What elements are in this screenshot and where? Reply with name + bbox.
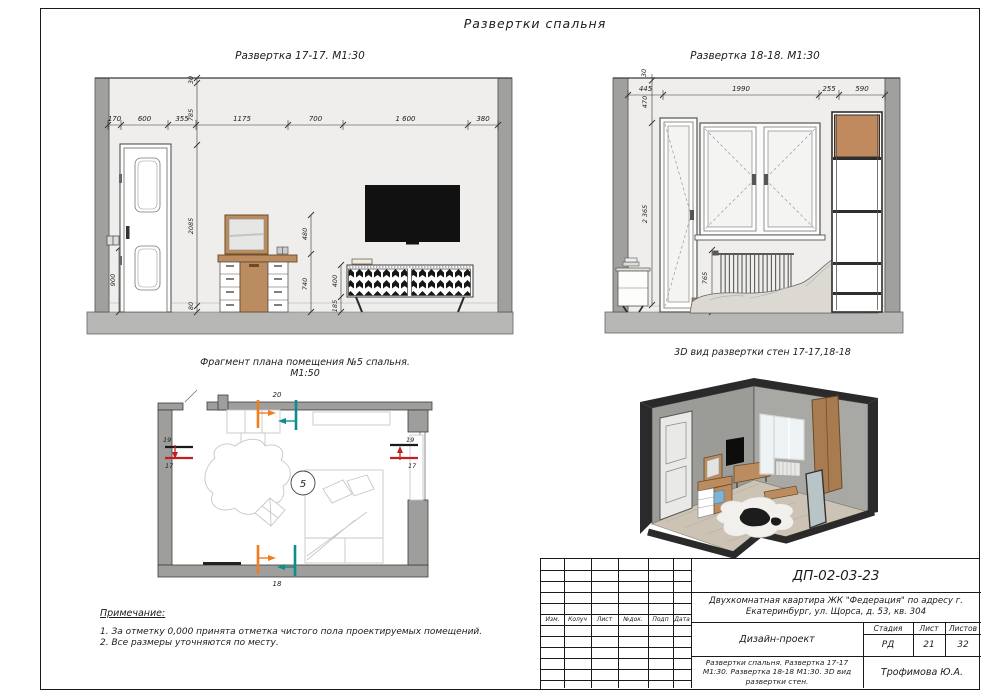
notes-heading: Примечание: [100, 608, 520, 620]
wardrobe [832, 112, 882, 312]
balcony-door [660, 118, 697, 312]
view3d-leaning-mirror [806, 470, 826, 528]
dim-1175: 1175 [233, 115, 251, 123]
tb-project-line2: Екатеринбург, ул. Щорса, д. 53, кв. 304 [746, 607, 926, 618]
tb-line [541, 625, 691, 626]
dresser-center-cabinet [240, 262, 268, 312]
dim-30: 30 [640, 69, 648, 77]
tb-label-izm: Изм. [541, 614, 564, 625]
door [119, 144, 171, 312]
elevation-17-title: Развертка 17-17. М1:30 [100, 50, 500, 62]
door-hinge [119, 256, 122, 265]
window-handle [764, 174, 768, 185]
entry-door-leaf [185, 390, 197, 402]
floor-band [87, 312, 513, 334]
door-handle [126, 226, 130, 239]
view3d-radiator [776, 461, 800, 476]
plan-title: Фрагмент плана помещения №5 спальня. М1:… [150, 357, 460, 379]
title-block: Изм. Колуч Лист №док. Подп Дата ДП-02-03… [540, 558, 980, 690]
side-wall-right [498, 78, 512, 312]
dim-255: 255 [822, 85, 836, 93]
plan-cabinet [313, 412, 390, 425]
tb-line [541, 647, 691, 648]
dim-30: 30 [187, 76, 195, 84]
view3d-window [760, 414, 804, 476]
marker-label-19: 19 [163, 436, 171, 444]
tb-project-line1: Двухкомнатная квартира ЖК "Федерация" по… [709, 596, 963, 607]
plan-rug [205, 439, 290, 514]
dim-600: 600 [138, 115, 152, 123]
dim-445: 445 [639, 85, 653, 93]
door-hinge [119, 174, 122, 183]
view3d-title: 3D вид развертки стен 17-17,18-18 [625, 347, 900, 358]
tb-label-doc: №док. [618, 614, 648, 625]
tb-stage-value: РД [863, 634, 913, 656]
tb-doc-type: Дизайн-проект [691, 622, 863, 656]
window-handle [752, 174, 756, 185]
tb-line [541, 581, 691, 582]
dim-2365: 2 365 [641, 205, 649, 224]
dim-590: 590 [855, 85, 869, 93]
tb-content-line3: развертки стен. [746, 677, 809, 687]
side-wall-right [885, 78, 900, 312]
tb-sheet-label: Лист [913, 622, 945, 634]
dim-765: 765 [701, 272, 709, 284]
marker-label-20: 20 [273, 391, 282, 399]
tb-stage-label: Стадия [863, 622, 913, 634]
note-item: 2. Все размеры уточняются по месту. [100, 638, 520, 650]
tb-line [541, 680, 691, 681]
floor-band [605, 312, 903, 333]
tb-line [541, 592, 691, 593]
tb-project: Двухкомнатная квартира ЖК "Федерация" по… [691, 592, 981, 622]
tb-label-koluch: Колуч [564, 614, 591, 625]
dim-480: 480 [301, 228, 309, 240]
plan-tv-stand-strip [203, 562, 241, 565]
open-drawer [714, 490, 724, 504]
note-item: 1. За отметку 0,000 принята отметка чист… [100, 627, 520, 639]
dim-900: 900 [109, 274, 117, 286]
view3d-drawing [626, 362, 896, 557]
radiator-valve [713, 251, 718, 255]
room-number: 5 [300, 479, 306, 490]
tb-doc-code: ДП-02-03-23 [691, 559, 981, 592]
dim-170: 170 [108, 115, 122, 123]
tb-line [541, 669, 691, 670]
window-sill [695, 235, 825, 240]
plan-title-scale: М1:50 [150, 368, 460, 379]
elevation-18-title: Развертка 18-18. М1:30 [600, 50, 910, 62]
books [625, 258, 637, 262]
marker-label-17: 17 [408, 462, 417, 470]
dim-1600: 1 600 [395, 115, 416, 123]
elevation-17-17-drawing: 170 600 355 1175 700 1 600 380 30 785 20… [85, 70, 515, 342]
balcony-door-handle [690, 210, 694, 220]
tb-sheets-value: 32 [945, 634, 981, 656]
dim-700: 700 [309, 115, 323, 123]
tb-author: Трофимова Ю.А. [863, 656, 981, 688]
tb-line [541, 658, 691, 659]
notes-block: Примечание: 1. За отметку 0,000 принята … [100, 608, 520, 650]
dim-740: 740 [301, 278, 309, 290]
tb-content-line2: М1:30. Развертка 18-18 М1:30. 3D вид [703, 667, 851, 677]
dim-380: 380 [476, 115, 490, 123]
tb-content: Развертки спальня. Развертка 17-17 М1:30… [691, 656, 863, 688]
view3d-tv [726, 437, 744, 466]
side-wall-left [95, 78, 109, 312]
dim-1990: 1990 [732, 85, 750, 93]
wardrobe-top-cabinet [835, 115, 880, 157]
marker-label-17: 17 [165, 462, 174, 470]
tb-label-podp: Подп [648, 614, 673, 625]
dim-470: 470 [641, 96, 649, 108]
plan-fragment-drawing: 5 20 18 19 17 [155, 388, 455, 616]
tb-line [541, 636, 691, 637]
tb-sheets-label: Листов [945, 622, 981, 634]
dim-785: 785 [187, 109, 195, 121]
tb-label-data: Дата [673, 614, 691, 625]
drawing-sheet: Развертки спальня Развертка 17-17. М1:30… [0, 0, 990, 700]
elevation-18-18-drawing: 445 1990 255 590 30 470 2 365 [600, 62, 905, 344]
dim-185: 185 [331, 300, 339, 312]
dim-2085: 2085 [187, 218, 195, 235]
tb-line [541, 603, 691, 604]
marker-label-18: 18 [273, 580, 282, 588]
tv [365, 185, 460, 245]
dim-400: 400 [331, 275, 339, 287]
view3d-door [660, 411, 692, 520]
page-title: Развертки спальня [335, 16, 735, 31]
tb-line [541, 570, 691, 571]
window [695, 123, 825, 240]
tray [352, 259, 372, 264]
tb-label-list: Лист [591, 614, 618, 625]
plan-title-line1: Фрагмент плана помещения №5 спальня. [150, 357, 460, 368]
dim-80: 80 [187, 302, 195, 310]
room-number-bubble: 5 [291, 471, 315, 495]
dresser-countertop [218, 255, 297, 262]
marker-label-19: 19 [406, 436, 414, 444]
books [623, 262, 639, 266]
tb-sheet-value: 21 [913, 634, 945, 656]
tb-content-line1: Развертки спальня. Развертка 17-17 [706, 658, 849, 668]
